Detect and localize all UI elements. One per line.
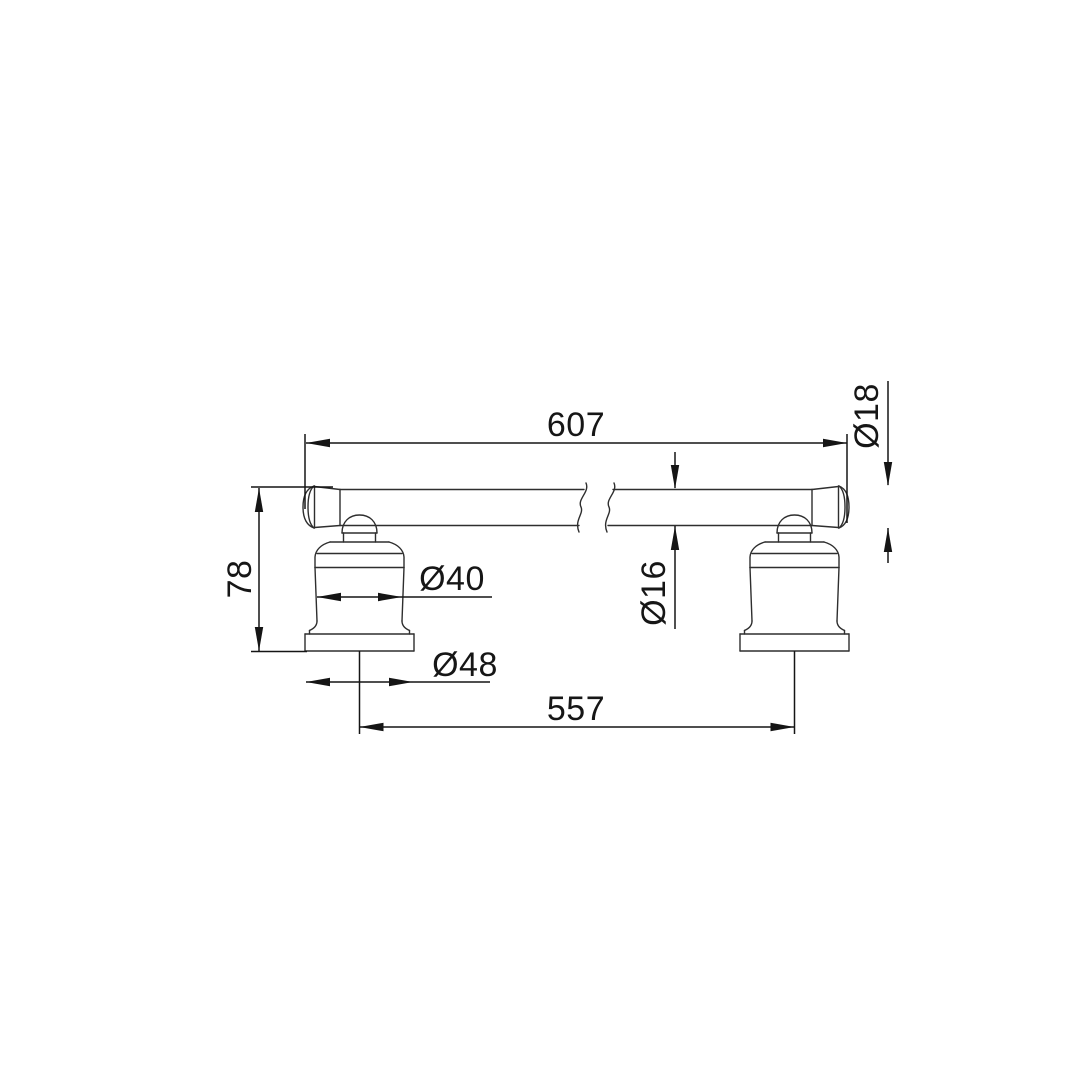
arrowhead — [671, 526, 679, 550]
arrowhead — [306, 678, 330, 686]
right-post-body-left — [750, 568, 752, 622]
technical-drawing: 607 Ø18 Ø16 78 Ø40 Ø48 — [0, 0, 1080, 1080]
arrowhead — [378, 593, 402, 601]
right-post-body-right — [837, 568, 839, 622]
dim-label-end-cap-diameter: Ø18 — [848, 383, 886, 449]
dim-rail-diameter: Ø16 — [635, 452, 679, 629]
dim-label-fixing-centres: 557 — [547, 690, 605, 728]
arrowhead — [360, 723, 384, 731]
arrowhead — [317, 593, 341, 601]
arrowhead — [255, 627, 263, 651]
arrowhead — [671, 465, 679, 489]
rail-left-cap-inner — [308, 486, 314, 528]
right-post — [740, 515, 849, 734]
dim-fixing-centres: 557 — [360, 690, 795, 731]
left-post-body-left — [315, 568, 317, 622]
arrowhead — [389, 678, 413, 686]
left-post-base-flange — [305, 634, 414, 651]
dim-post-height: 78 — [221, 487, 333, 652]
rail-right-cap-inner — [839, 486, 845, 528]
right-post-base-flange — [740, 634, 849, 651]
dim-base-flange-diameter: Ø48 — [306, 646, 498, 686]
arrowhead — [771, 723, 795, 731]
rail-break-left — [578, 483, 587, 532]
dim-label-overall-length: 607 — [547, 406, 605, 444]
arrowhead — [255, 488, 263, 512]
arrowhead — [884, 462, 892, 486]
dim-end-cap-diameter: Ø18 — [848, 381, 892, 563]
dim-label-rail-diameter: Ø16 — [635, 560, 673, 626]
left-post-knob — [342, 515, 377, 533]
dim-label-base-flange-diameter: Ø48 — [432, 646, 498, 684]
left-post-body-right — [402, 568, 404, 622]
rail-bar — [303, 483, 849, 532]
dim-label-post-body-diameter: Ø40 — [419, 560, 485, 598]
right-post-knob — [777, 515, 812, 533]
technical-drawing-page: 607 Ø18 Ø16 78 Ø40 Ø48 — [0, 0, 1080, 1080]
left-post — [305, 515, 414, 734]
arrowhead — [823, 439, 847, 447]
rail-break-right — [606, 483, 615, 532]
arrowhead — [884, 528, 892, 552]
dim-label-post-height: 78 — [221, 560, 259, 599]
arrowhead — [306, 439, 330, 447]
dim-overall-length: 607 — [305, 406, 847, 523]
